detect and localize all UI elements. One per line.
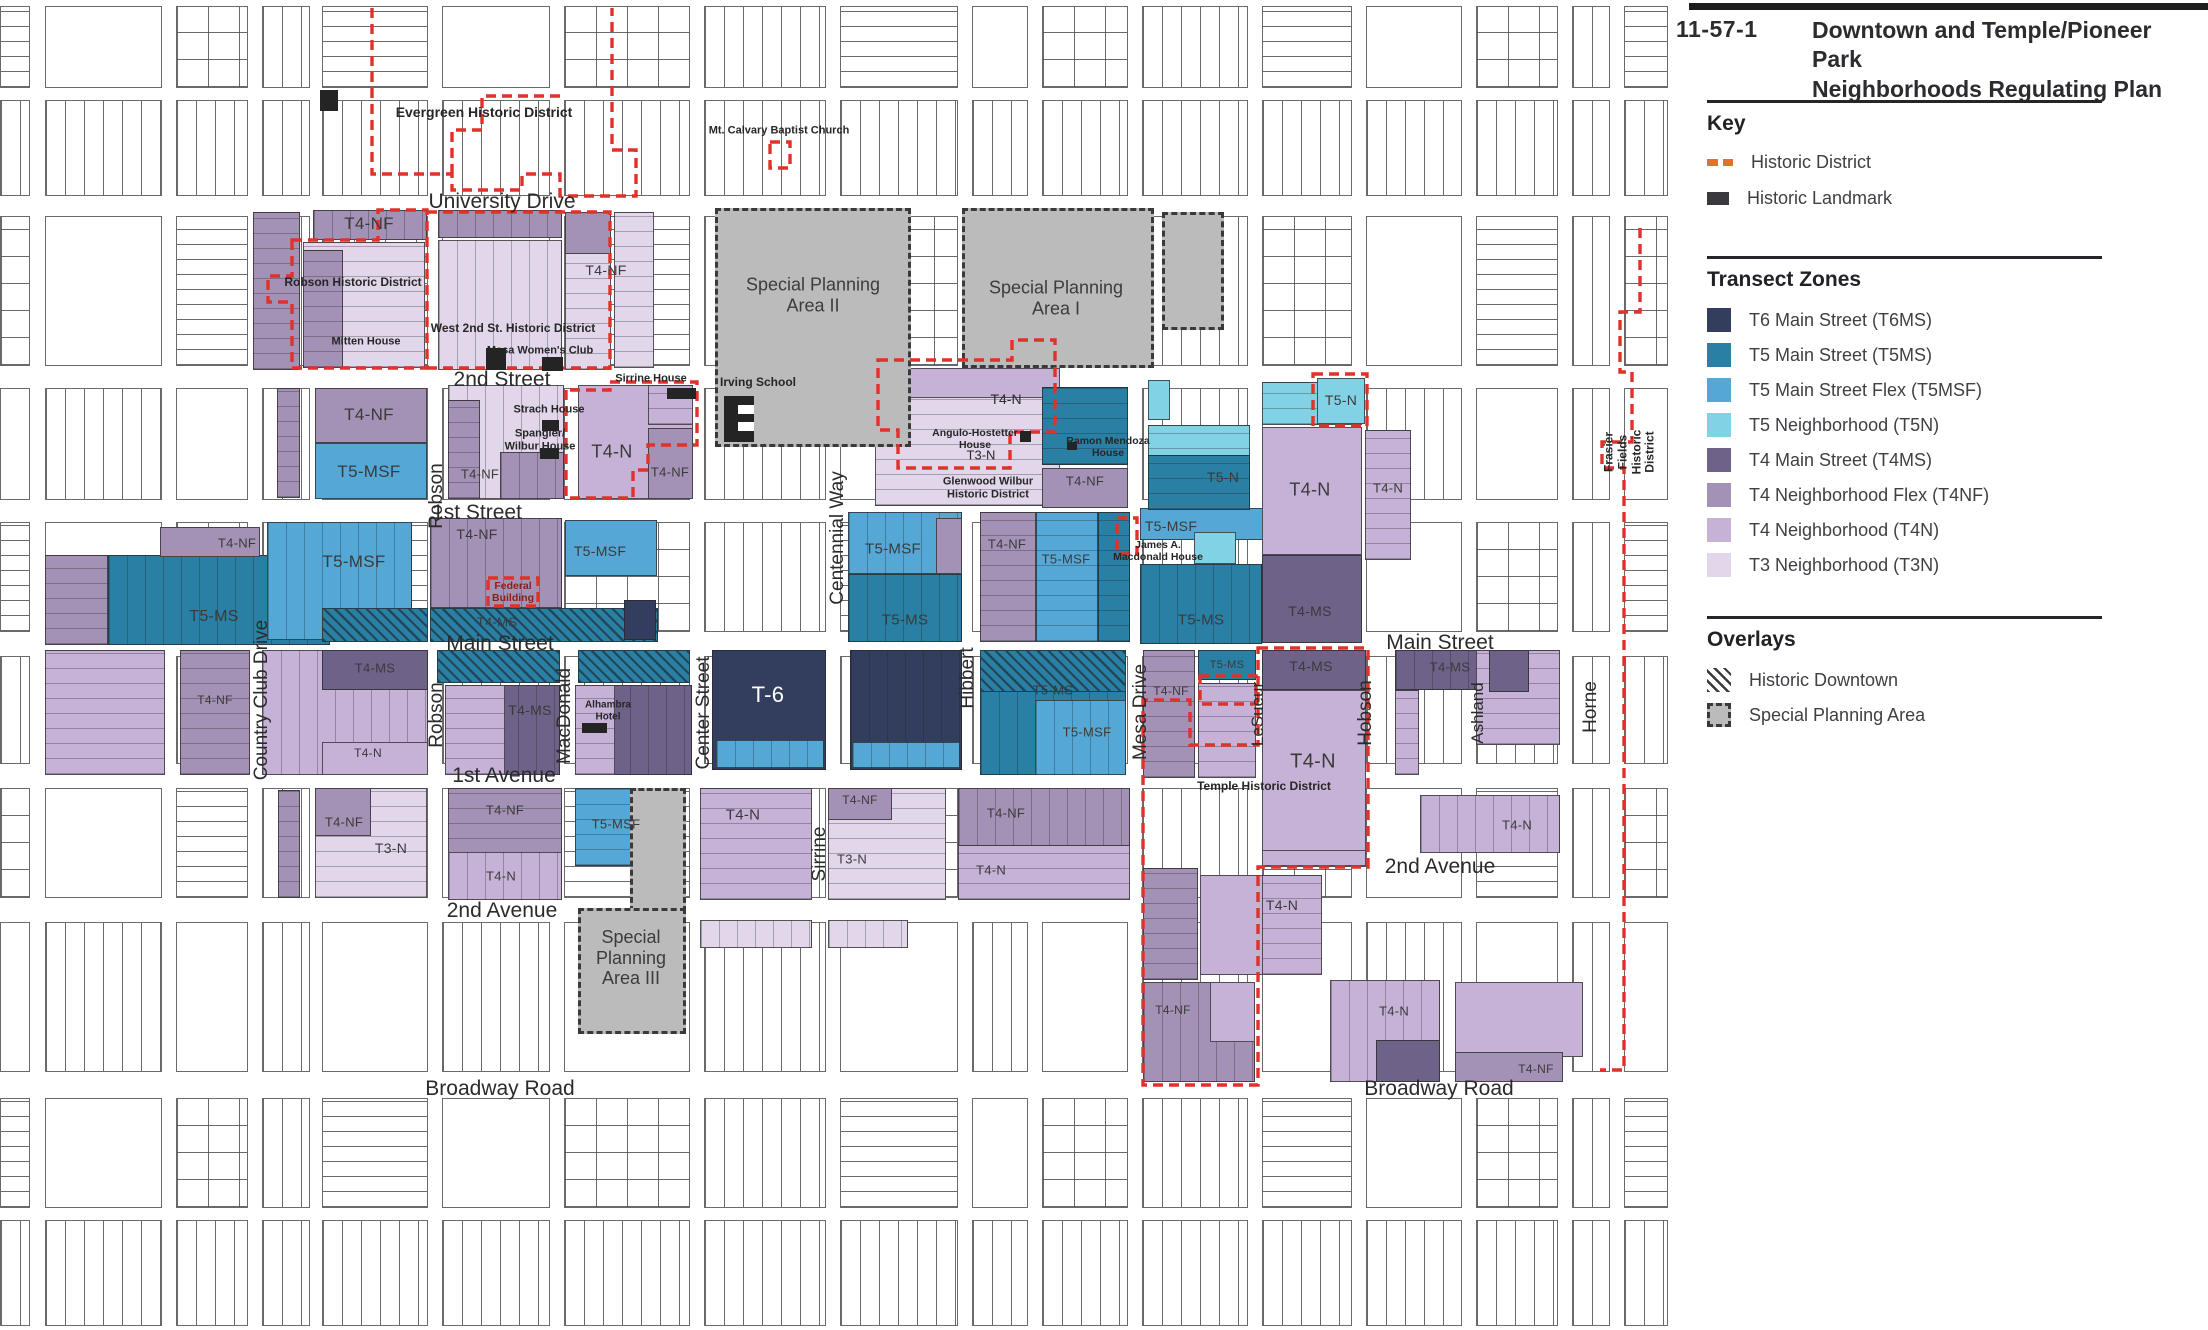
special-planning-area bbox=[630, 788, 686, 912]
divider bbox=[1707, 100, 2102, 103]
zone-label: T5-MSF bbox=[1063, 725, 1112, 740]
parcel-block bbox=[176, 216, 248, 366]
special-planning-area-label: Special Planning Area II bbox=[746, 274, 880, 315]
street-label: Sirrine bbox=[809, 827, 831, 882]
zone-block-t4n bbox=[700, 788, 812, 900]
key-swatch-historic-landmark bbox=[1707, 192, 1729, 205]
zone-block-t5msf bbox=[852, 742, 960, 768]
parcel-block bbox=[1572, 1098, 1610, 1208]
parcel-block bbox=[176, 100, 248, 196]
parcel-block bbox=[1476, 1220, 1558, 1326]
zone-label: T4-NF bbox=[842, 793, 878, 807]
zone-label: T5-MSF bbox=[865, 541, 921, 558]
parcel-block bbox=[0, 6, 30, 88]
parcel-block bbox=[1572, 100, 1610, 196]
page: T4-NFT4-NFT4-NFT4-NFT5-MSFT4-NFT4-NT4-NF… bbox=[0, 0, 2208, 1330]
historic-downtown-hatch bbox=[579, 651, 689, 682]
zone-label: T3-N bbox=[837, 852, 867, 867]
parcel-block bbox=[1624, 1220, 1668, 1326]
parcel-block bbox=[0, 100, 30, 196]
plan-title: Downtown and Temple/Pioneer Park Neighbo… bbox=[1812, 16, 2202, 104]
special-planning-area bbox=[1162, 212, 1224, 330]
parcel-block bbox=[840, 1220, 958, 1326]
zone-block-t4n bbox=[1420, 795, 1560, 853]
zone-block-t4nf bbox=[278, 790, 300, 898]
zone-label: T5-N bbox=[1325, 392, 1357, 408]
parcel-block bbox=[1624, 100, 1668, 196]
zone-label: T4-NF bbox=[1155, 1003, 1191, 1017]
street-label: 2nd Avenue bbox=[447, 899, 558, 923]
zone-block-t4nf bbox=[565, 212, 611, 254]
zone-block-t4ms bbox=[1376, 1040, 1440, 1082]
parcel-block bbox=[322, 1098, 428, 1208]
transect-item-label: T4 Neighborhood Flex (T4NF) bbox=[1749, 485, 1989, 506]
parcel-block bbox=[176, 6, 248, 88]
parcel-block bbox=[1624, 522, 1668, 632]
street-label: Hobson bbox=[1355, 680, 1377, 746]
parcel-block bbox=[45, 788, 162, 898]
transect-item-label: T4 Main Street (T4MS) bbox=[1749, 450, 1932, 471]
parcel-block bbox=[564, 6, 690, 88]
zone-block-t4nf bbox=[438, 210, 562, 238]
parcel-block bbox=[1262, 6, 1352, 88]
key-swatch-historic-district bbox=[1707, 159, 1733, 166]
parcel-block bbox=[1366, 1220, 1462, 1326]
parcel-block bbox=[1042, 922, 1128, 1072]
transect-item-t5msf: T5 Main Street Flex (T5MSF) bbox=[1707, 378, 2107, 402]
top-rule bbox=[1689, 3, 2208, 10]
transect-heading: Transect Zones bbox=[1707, 268, 2107, 292]
transect-swatch-t5ms bbox=[1707, 343, 1731, 367]
landmark-label: James A. Macdonald House bbox=[1113, 539, 1203, 563]
street-label: Country Club Drive bbox=[251, 620, 273, 781]
parcel-block bbox=[564, 100, 690, 196]
zone-label: T4-MS bbox=[1289, 658, 1333, 674]
overlay-swatch-special-planning-area bbox=[1707, 703, 1731, 727]
zone-label: T4-NF bbox=[325, 815, 363, 830]
zone-label: T5-MSF bbox=[322, 552, 385, 572]
overlay-item: Special Planning Area bbox=[1707, 703, 2107, 727]
parcel-block bbox=[1476, 216, 1558, 366]
transect-item-t4n: T4 Neighborhood (T4N) bbox=[1707, 518, 2107, 542]
landmark-label: T4-N bbox=[990, 391, 1021, 407]
zone-label: T4-MS bbox=[508, 702, 552, 718]
parcel-block bbox=[1572, 522, 1610, 632]
landmark-label: Temple Historic District bbox=[1197, 780, 1331, 794]
divider bbox=[1707, 256, 2102, 259]
transect-item-label: T5 Neighborhood (T5N) bbox=[1749, 415, 1939, 436]
parcel-block bbox=[1142, 1220, 1248, 1326]
transect-swatch-t5msf bbox=[1707, 378, 1731, 402]
zone-label: T5-MS bbox=[1178, 612, 1225, 629]
zone-label: T5-MSF bbox=[337, 462, 400, 482]
parcel-block bbox=[1476, 522, 1558, 632]
parcel-block bbox=[1624, 788, 1668, 898]
parcel-block bbox=[176, 1220, 248, 1326]
legend-transect-section: Transect Zones T6 Main Street (T6MS)T5 M… bbox=[1707, 256, 2107, 588]
key-heading: Key bbox=[1707, 112, 2107, 136]
zone-block-t5ms bbox=[578, 650, 690, 683]
parcel-block bbox=[1366, 216, 1462, 366]
parcel-block bbox=[262, 100, 310, 196]
parcel-block bbox=[1624, 216, 1668, 366]
zone-block-t4n bbox=[1262, 850, 1366, 866]
street-label: Centennial Way bbox=[827, 471, 849, 604]
zone-block-t3n bbox=[700, 920, 812, 948]
transect-item-t4nf: T4 Neighborhood Flex (T4NF) bbox=[1707, 483, 2107, 507]
zone-label: T4-NF bbox=[988, 537, 1026, 552]
zone-label: T4-MS bbox=[1430, 660, 1471, 675]
parcel-block bbox=[1476, 6, 1558, 88]
parcel-block bbox=[442, 1098, 550, 1208]
parcel-block bbox=[0, 922, 30, 1072]
zone-label: T5-MSF bbox=[574, 543, 626, 559]
parcel-block bbox=[1042, 100, 1128, 196]
zone-label: T4-N bbox=[1379, 1004, 1409, 1019]
parcel-block bbox=[1624, 656, 1668, 764]
divider bbox=[1707, 616, 2102, 619]
parcel-block bbox=[45, 216, 162, 366]
zone-label: T5-MS bbox=[1210, 659, 1245, 671]
street-label: Hibbert bbox=[957, 647, 979, 708]
parcel-block bbox=[704, 1098, 826, 1208]
zone-block-t4nf bbox=[648, 428, 693, 499]
parcel-block bbox=[1042, 6, 1128, 88]
historic-landmark-square bbox=[582, 723, 607, 733]
street-label: Main Street bbox=[1386, 631, 1493, 655]
parcel-block bbox=[972, 1098, 1028, 1208]
zone-block-t4nf bbox=[980, 512, 1036, 642]
overlay-item-label: Special Planning Area bbox=[1749, 705, 1925, 726]
parcel-block bbox=[262, 1220, 310, 1326]
street-label: 2nd Avenue bbox=[1385, 855, 1496, 879]
zone-label: T5-MS bbox=[882, 612, 929, 629]
landmark-label: Mitten House bbox=[331, 336, 400, 349]
zone-block-t4nf bbox=[500, 452, 564, 499]
zone-label: T4-MS bbox=[477, 615, 518, 630]
street-label: Broadway Road bbox=[1364, 1077, 1513, 1101]
zone-block-t4nf bbox=[277, 388, 300, 498]
transect-item-label: T5 Main Street Flex (T5MSF) bbox=[1749, 380, 1982, 401]
parcel-block bbox=[442, 6, 550, 88]
parcel-block bbox=[972, 100, 1028, 196]
parcel-block bbox=[45, 100, 162, 196]
zone-block-t4nf bbox=[45, 555, 108, 645]
zone-block-t4nf bbox=[448, 400, 480, 499]
street-label: Mesa Drive bbox=[1130, 664, 1152, 760]
street-label: Horne bbox=[1580, 681, 1602, 733]
transect-item-label: T3 Neighborhood (T3N) bbox=[1749, 555, 1939, 576]
street-label: Frasier Fields Historic District bbox=[1602, 430, 1657, 475]
zone-block-t4nf bbox=[1143, 868, 1198, 980]
parcel-block bbox=[1262, 100, 1352, 196]
parcel-block bbox=[262, 922, 310, 1072]
landmark-label: West 2nd St. Historic District bbox=[431, 322, 595, 336]
transect-swatch-t6ms bbox=[1707, 308, 1731, 332]
parcel-block bbox=[1142, 6, 1248, 88]
parcel-block bbox=[1572, 1220, 1610, 1326]
zone-label: T4-N bbox=[1373, 481, 1403, 496]
street-label: LeSueur bbox=[1248, 682, 1268, 746]
transect-item-label: T6 Main Street (T6MS) bbox=[1749, 310, 1932, 331]
street-label: Robson bbox=[426, 463, 448, 529]
irving-school-building-notch bbox=[738, 422, 754, 431]
landmark-label: Angulo-Hostetter House bbox=[932, 427, 1018, 451]
parcel-block bbox=[176, 1098, 248, 1208]
parcel-block bbox=[0, 216, 30, 366]
transect-item-t5n: T5 Neighborhood (T5N) bbox=[1707, 413, 2107, 437]
parcel-block bbox=[972, 6, 1028, 88]
zone-label: T4-N bbox=[1266, 897, 1298, 913]
parcel-block bbox=[176, 922, 248, 1072]
landmark-label: Alhambra Hotel bbox=[585, 700, 631, 723]
transect-item-label: T4 Neighborhood (T4N) bbox=[1749, 520, 1939, 541]
parcel-block bbox=[564, 1098, 690, 1208]
zone-label: T4-MS bbox=[355, 661, 396, 676]
parcel-block bbox=[0, 1220, 30, 1326]
zone-label: T4-NF bbox=[1153, 684, 1189, 698]
zone-label: T4-NF bbox=[461, 467, 499, 482]
landmark-label: Ramon Mendoza House bbox=[1066, 435, 1149, 459]
zone-label: T4-N bbox=[354, 746, 382, 760]
parcel-block bbox=[564, 1220, 690, 1326]
zone-block-t5msf bbox=[1036, 512, 1098, 642]
zone-label: T5-N bbox=[1207, 469, 1239, 485]
parcel-block bbox=[262, 1098, 310, 1208]
zone-label: T4-NF bbox=[344, 214, 394, 234]
parcel-block bbox=[1624, 6, 1668, 88]
historic-landmark-square bbox=[320, 90, 338, 111]
parcel-block bbox=[176, 788, 248, 898]
parcel-block bbox=[1366, 1098, 1462, 1208]
zone-block-t4n bbox=[445, 685, 505, 775]
parcel-block bbox=[1476, 388, 1558, 500]
parcel-block bbox=[322, 1220, 428, 1326]
transect-swatch-t4n bbox=[1707, 518, 1731, 542]
zone-block-t5msf bbox=[716, 740, 824, 768]
historic-landmark-square bbox=[667, 388, 696, 399]
special-planning-area-label: Special Planning Area I bbox=[989, 277, 1123, 318]
parcel-block bbox=[0, 656, 30, 764]
key-item-label: Historic Landmark bbox=[1747, 188, 1892, 209]
parcel-block bbox=[972, 1220, 1028, 1326]
zone-label: T4-N bbox=[1289, 480, 1330, 501]
historic-landmark-square bbox=[1020, 431, 1031, 442]
parcel-block bbox=[0, 522, 30, 632]
parcel-block bbox=[704, 6, 826, 88]
parcel-block bbox=[442, 1220, 550, 1326]
zone-label: T4-NF bbox=[1518, 1062, 1554, 1076]
key-item: Historic Landmark bbox=[1707, 188, 2107, 209]
zone-label: T5-MSF bbox=[592, 817, 641, 832]
zone-block-t4nf bbox=[936, 518, 962, 574]
legend-key-section: Key Historic DistrictHistoric Landmark bbox=[1707, 100, 2107, 224]
zone-label: T4-NF bbox=[197, 693, 233, 707]
transect-item-t5ms: T5 Main Street (T5MS) bbox=[1707, 343, 2107, 367]
street-label: Robson bbox=[426, 682, 448, 748]
parcel-block bbox=[840, 6, 958, 88]
parcel-block bbox=[45, 1220, 162, 1326]
street-label: Broadway Road bbox=[425, 1077, 574, 1101]
zone-label: T4-NF bbox=[585, 262, 626, 278]
parcel-block bbox=[704, 1220, 826, 1326]
parcel-block bbox=[1142, 1098, 1248, 1208]
parcel-block bbox=[262, 6, 310, 88]
zone-label: T4-NF bbox=[344, 405, 394, 425]
zone-block-t4ms bbox=[1489, 650, 1529, 692]
zone-label: T4-NF bbox=[456, 526, 497, 542]
parcel-block bbox=[840, 1098, 958, 1208]
overlay-swatch-historic-downtown bbox=[1707, 668, 1731, 692]
parcel-block bbox=[1476, 100, 1558, 196]
zone-block-t4n bbox=[1262, 875, 1322, 975]
zone-label: T4-N bbox=[1502, 818, 1532, 833]
zone-block-t5ms bbox=[322, 608, 428, 642]
zone-label: T5-MSF bbox=[1145, 518, 1197, 534]
transect-swatch-t5n bbox=[1707, 413, 1731, 437]
parcel-block bbox=[1366, 6, 1462, 88]
key-items: Historic DistrictHistoric Landmark bbox=[1707, 152, 2107, 209]
zone-block-t4nf bbox=[180, 650, 250, 775]
transect-item-t6ms: T6 Main Street (T6MS) bbox=[1707, 308, 2107, 332]
landmark-label: Irving School bbox=[720, 376, 796, 390]
zone-label: T4-NF bbox=[218, 536, 256, 551]
transect-item-t4ms: T4 Main Street (T4MS) bbox=[1707, 448, 2107, 472]
zone-label: T4-MS bbox=[1288, 603, 1332, 619]
parcel-block bbox=[704, 100, 826, 196]
zone-label: T4-NF bbox=[987, 806, 1025, 821]
zone-label: T4-NF bbox=[651, 465, 689, 480]
zone-label: T4-NF bbox=[1066, 474, 1104, 489]
parcel-block bbox=[45, 6, 162, 88]
zone-label: T5-MS bbox=[1033, 683, 1074, 698]
key-item-label: Historic District bbox=[1751, 152, 1871, 173]
plan-code: 11-57-1 bbox=[1676, 16, 1758, 43]
parcel-block bbox=[1572, 216, 1610, 366]
street-label: Center Street bbox=[693, 657, 715, 770]
zone-label: T4-N bbox=[486, 869, 516, 884]
transect-swatch-t4ms bbox=[1707, 448, 1731, 472]
zone-block-t4nf bbox=[253, 212, 300, 370]
parcel-block bbox=[0, 788, 30, 898]
parcel-block bbox=[45, 922, 162, 1072]
zone-label: T-6 bbox=[752, 682, 785, 708]
parcel-block bbox=[1042, 1220, 1128, 1326]
overlays-heading: Overlays bbox=[1707, 628, 2107, 652]
overlay-item: Historic Downtown bbox=[1707, 668, 2107, 692]
landmark-label: Sirrine House bbox=[615, 373, 687, 386]
landmark-label: Spangler/ Wilbur House bbox=[505, 427, 576, 452]
parcel-block bbox=[972, 922, 1028, 1072]
street-label: 1st Avenue bbox=[452, 764, 556, 788]
parcel-block bbox=[1142, 100, 1248, 196]
irving-school-building bbox=[724, 396, 754, 442]
parcel-block bbox=[1572, 788, 1610, 898]
landmark-label: Strach House bbox=[514, 404, 585, 417]
overlay-items: Historic DowntownSpecial Planning Area bbox=[1707, 668, 2107, 727]
zone-block-t4n bbox=[45, 650, 165, 775]
street-label: University Drive bbox=[428, 190, 575, 214]
zone-label: T4-N bbox=[976, 863, 1006, 878]
transect-items: T6 Main Street (T6MS)T5 Main Street (T5M… bbox=[1707, 308, 2107, 577]
zone-block-t4nf bbox=[303, 250, 343, 368]
zone-block-t5ms bbox=[1140, 564, 1262, 644]
street-label: Ashland bbox=[1468, 682, 1488, 743]
parcel-block bbox=[176, 388, 248, 500]
overlay-item-label: Historic Downtown bbox=[1749, 670, 1898, 691]
irving-school-building-notch bbox=[738, 405, 754, 414]
zone-block-t5n bbox=[1148, 380, 1170, 420]
street-label: MacDonald bbox=[554, 668, 576, 764]
zone-block-t3n bbox=[614, 212, 654, 368]
historic-downtown-hatch bbox=[323, 609, 427, 641]
landmark-label: Evergreen Historic District bbox=[396, 104, 573, 120]
parcel-block bbox=[1366, 100, 1462, 196]
street-label: 2nd Street bbox=[454, 368, 551, 392]
parcel-block bbox=[442, 922, 550, 1072]
legend-panel: 11-57-1 Downtown and Temple/Pioneer Park… bbox=[1676, 0, 2208, 1330]
parcel-block bbox=[45, 1098, 162, 1208]
parcel-block bbox=[322, 6, 428, 88]
map-canvas: T4-NFT4-NFT4-NFT4-NFT5-MSFT4-NFT4-NT4-NF… bbox=[0, 0, 1668, 1330]
transect-item-t3n: T3 Neighborhood (T3N) bbox=[1707, 553, 2107, 577]
parcel-block bbox=[1476, 1098, 1558, 1208]
zone-block-t3n bbox=[828, 920, 908, 948]
parcel-block bbox=[1624, 1098, 1668, 1208]
landmark-label: Mesa Women's Club bbox=[487, 345, 593, 358]
zone-label: T3-N bbox=[375, 840, 407, 856]
zone-block-t4n bbox=[1210, 982, 1255, 1042]
parcel-block bbox=[840, 100, 958, 196]
street-label: Main Street bbox=[446, 632, 553, 656]
legend-overlays-section: Overlays Historic DowntownSpecial Planni… bbox=[1707, 616, 2107, 738]
parcel-block bbox=[1572, 6, 1610, 88]
parcel-block bbox=[45, 388, 162, 500]
landmark-label: Mt. Calvary Baptist Church bbox=[709, 125, 850, 138]
parcel-block bbox=[1262, 1098, 1352, 1208]
key-item: Historic District bbox=[1707, 152, 2107, 173]
transect-swatch-t4nf bbox=[1707, 483, 1731, 507]
parcel-block bbox=[1624, 922, 1668, 1072]
parcel-block bbox=[704, 522, 826, 632]
zone-label: T5-MS bbox=[189, 608, 239, 626]
zone-block-t4n bbox=[1455, 982, 1583, 1057]
special-planning-area-label: Special Planning Area III bbox=[596, 927, 666, 989]
parcel-block bbox=[322, 922, 428, 1072]
parcel-block bbox=[1262, 1220, 1352, 1326]
transect-swatch-t3n bbox=[1707, 553, 1731, 577]
landmark-label: Robson Historic District bbox=[284, 276, 421, 290]
parcel-block bbox=[0, 1098, 30, 1208]
zone-block-t6ms bbox=[624, 600, 656, 640]
parcel-block bbox=[1042, 1098, 1128, 1208]
transect-item-label: T5 Main Street (T5MS) bbox=[1749, 345, 1932, 366]
zone-label: T5-MSF bbox=[1042, 552, 1091, 567]
landmark-label: Glenwood Wilbur Historic District bbox=[943, 475, 1033, 500]
zone-block-t4n bbox=[1395, 690, 1419, 775]
parcel-block bbox=[1262, 216, 1352, 366]
zone-label: T4-N bbox=[726, 807, 761, 824]
zone-block-t5ms bbox=[848, 574, 962, 642]
zone-label: T4-N bbox=[1290, 751, 1336, 774]
zone-block-t4ms bbox=[1262, 555, 1362, 643]
landmark-label: Federal Building bbox=[492, 580, 534, 604]
zone-block-t5ms bbox=[1098, 512, 1130, 642]
zone-label: T4-N bbox=[591, 442, 632, 463]
zone-label: T4-NF bbox=[486, 803, 524, 818]
parcel-block bbox=[0, 388, 30, 500]
